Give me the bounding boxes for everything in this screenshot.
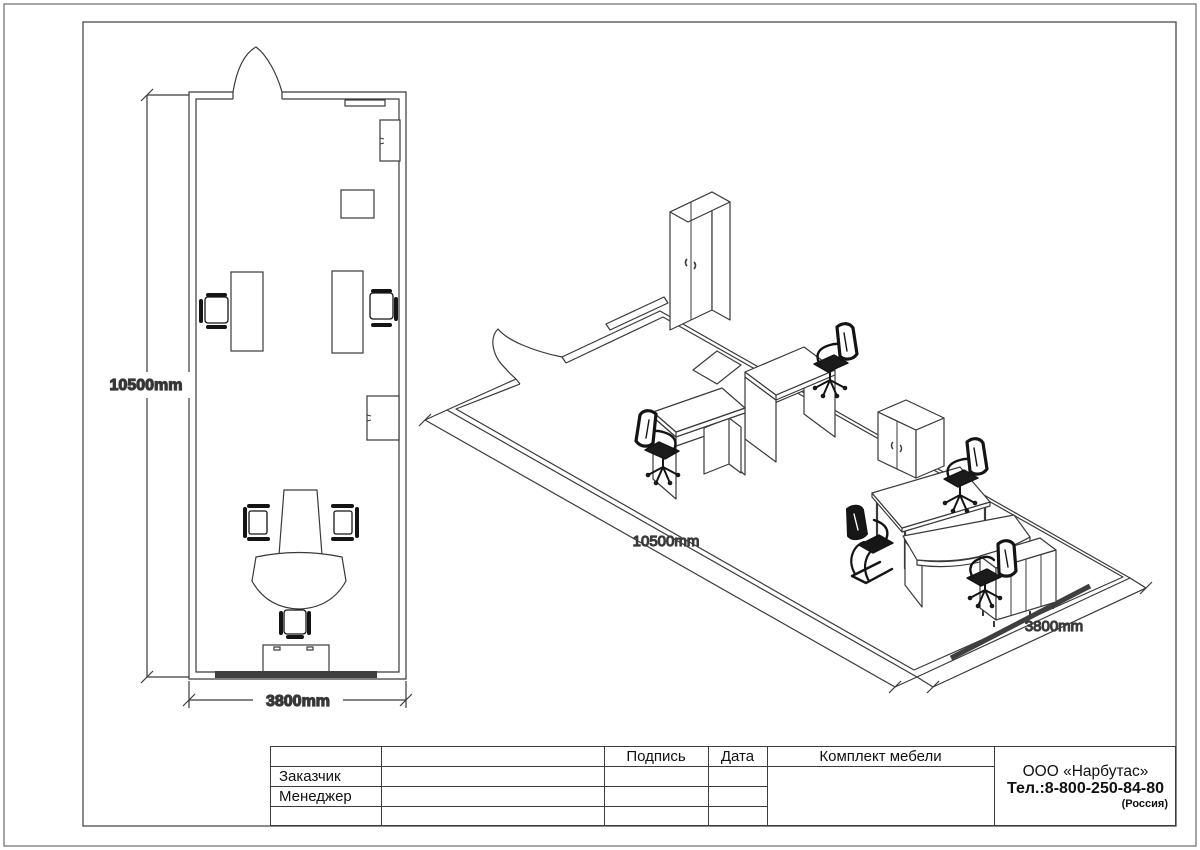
iso-desk-2 [653, 388, 745, 499]
plan-visitor-chair-right [333, 506, 357, 539]
iso-visitor-chair [847, 506, 893, 583]
header-furniture-set: Комплект мебели [767, 747, 994, 766]
drawing-sheet: 10500mm 3800mm [0, 0, 1200, 850]
plan-wall-shelf [345, 100, 385, 106]
plan-window-sill [215, 671, 377, 678]
row-label-customer: Заказчик [271, 766, 381, 786]
plan-executive-desk [252, 553, 346, 610]
iso-wall-shelf [606, 297, 668, 330]
plan-height-label: 10500mm [110, 377, 183, 394]
plan-floor-mat [341, 190, 374, 218]
plan-desk-left [231, 272, 263, 351]
title-block-divider [271, 806, 767, 807]
plan-meeting-table [279, 490, 322, 555]
plan-width-label: 3800mm [266, 693, 330, 710]
company-name: ООО «Нарбутас» [1023, 764, 1149, 780]
plan-door-swing [233, 47, 282, 92]
plan-executive-chair [281, 610, 309, 637]
title-block: Подпись Дата Комплект мебели Заказчик Ме… [270, 746, 1176, 826]
row-label-manager: Менеджер [271, 786, 381, 806]
isometric-view: 10500mm 3800mm [419, 192, 1152, 693]
plan-task-chair-right [370, 291, 396, 325]
drawing-canvas: 10500mm 3800mm [0, 0, 1200, 850]
company-phone: Тел.:8-800-250-84-80 [1007, 781, 1164, 797]
iso-floor-mat [693, 351, 741, 384]
iso-length-label: 10500mm [633, 533, 700, 550]
plan-task-chair-left [201, 295, 228, 327]
iso-wardrobe [670, 192, 730, 330]
iso-width-label: 3800mm [1025, 618, 1083, 635]
plan-desk-right [332, 271, 363, 353]
header-signature: Подпись [604, 747, 708, 766]
plan-wardrobe [380, 120, 400, 161]
plan-visitor-chair-left [245, 506, 268, 539]
company-cell: ООО «Нарбутас» Тел.:8-800-250-84-80 (Рос… [994, 747, 1177, 827]
frame-border [83, 22, 1176, 826]
company-country: (Россия) [1122, 799, 1177, 810]
plan-wall-cabinet [367, 396, 399, 440]
sheet-borders [4, 4, 1196, 846]
header-date: Дата [708, 747, 767, 766]
outer-border [4, 4, 1196, 846]
iso-door-swing [493, 329, 562, 379]
plan-dimension-width: 3800mm [183, 681, 412, 712]
plan-dimension-height: 10500mm [100, 89, 192, 683]
iso-cabinet [878, 400, 944, 478]
floor-plan-view: 10500mm 3800mm [100, 47, 412, 712]
